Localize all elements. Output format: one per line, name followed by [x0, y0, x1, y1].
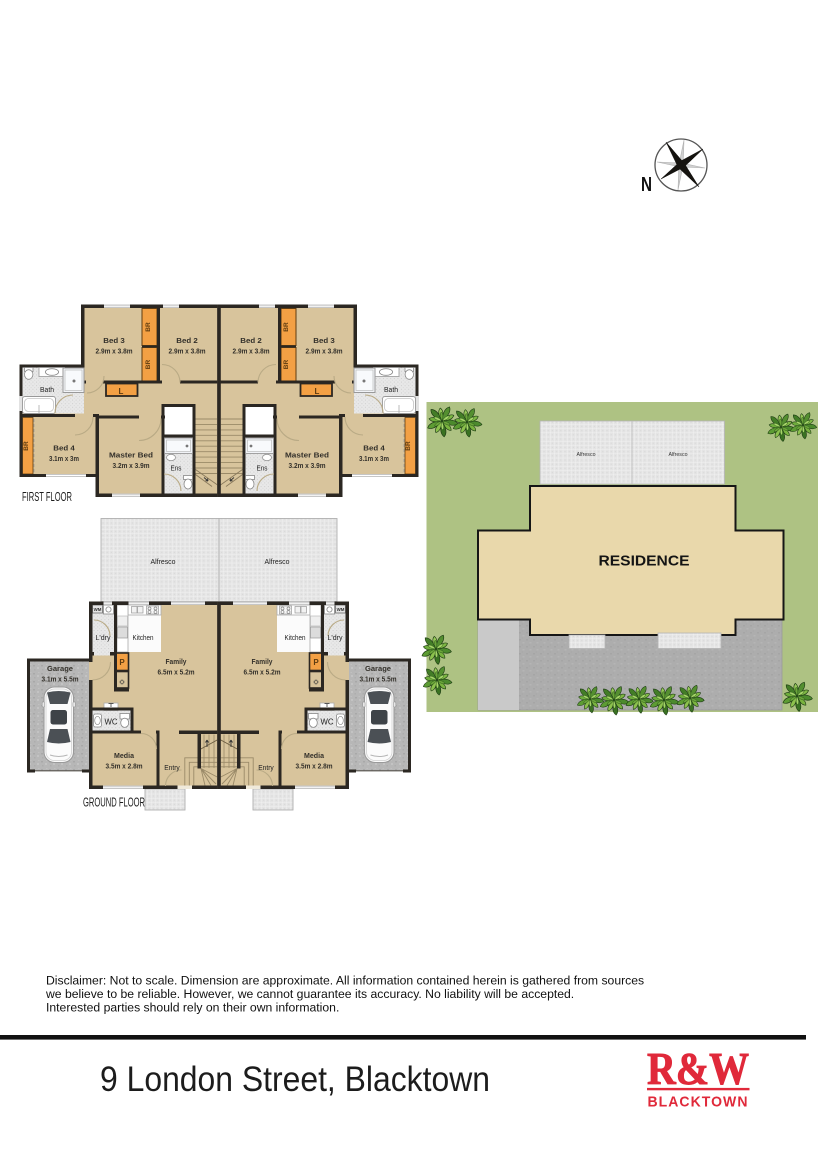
svg-text:Bath: Bath	[384, 387, 398, 394]
svg-text:RESIDENCE: RESIDENCE	[599, 553, 690, 570]
svg-text:3.2m x 3.9m: 3.2m x 3.9m	[289, 461, 326, 470]
svg-text:Alfresco: Alfresco	[669, 452, 688, 458]
svg-text:Entry: Entry	[164, 763, 180, 772]
svg-text:Media: Media	[304, 751, 325, 760]
svg-text:N: N	[641, 174, 652, 196]
svg-text:BR: BR	[283, 322, 290, 332]
svg-text:Master Bed: Master Bed	[285, 451, 329, 460]
svg-text:Kitchen: Kitchen	[285, 633, 306, 642]
svg-text:3.5m x 2.8m: 3.5m x 2.8m	[296, 762, 333, 771]
svg-text:Bed 4: Bed 4	[53, 444, 75, 453]
svg-text:2.9m x 3.8m: 2.9m x 3.8m	[169, 347, 206, 356]
svg-text:L: L	[119, 387, 124, 396]
svg-text:Alfresco: Alfresco	[265, 559, 290, 566]
svg-text:6.5m x 5.2m: 6.5m x 5.2m	[244, 668, 281, 677]
svg-text:3.1m x 5.5m: 3.1m x 5.5m	[42, 675, 79, 684]
svg-text:WM: WM	[94, 607, 102, 612]
svg-text:Bed 2: Bed 2	[240, 336, 262, 345]
svg-text:Interested parties should rely: Interested parties should rely on their …	[46, 1000, 339, 1014]
svg-text:FIRST FLOOR: FIRST FLOOR	[22, 489, 72, 504]
svg-text:Disclaimer: Not to scale. Dime: Disclaimer: Not to scale. Dimension are …	[46, 974, 644, 988]
svg-text:Alfresco: Alfresco	[577, 452, 596, 458]
svg-text:Family: Family	[252, 657, 274, 666]
svg-text:Master Bed: Master Bed	[109, 451, 153, 460]
svg-text:GROUND FLOOR: GROUND FLOOR	[83, 795, 145, 810]
svg-text:Ens: Ens	[171, 466, 182, 473]
svg-text:3.1m x 3m: 3.1m x 3m	[359, 454, 389, 463]
svg-text:3.1m x 5.5m: 3.1m x 5.5m	[360, 675, 397, 684]
svg-text:Kitchen: Kitchen	[133, 633, 154, 642]
svg-text:3.5m x 2.8m: 3.5m x 2.8m	[106, 762, 143, 771]
svg-text:Family: Family	[166, 657, 188, 666]
svg-text:Bed 3: Bed 3	[103, 336, 125, 345]
svg-text:Garage: Garage	[47, 664, 73, 673]
svg-text:Media: Media	[114, 751, 135, 760]
svg-text:WC: WC	[105, 718, 118, 727]
svg-text:we believe to be reliable. How: we believe to be reliable. However, we c…	[45, 987, 574, 1001]
svg-text:L'dry: L'dry	[96, 635, 111, 642]
svg-text:WC: WC	[321, 718, 334, 727]
svg-text:Ens: Ens	[257, 466, 268, 473]
svg-text:Bed 2: Bed 2	[176, 336, 198, 345]
svg-text:L: L	[315, 387, 320, 396]
svg-text:9 London Street, Blacktown: 9 London Street, Blacktown	[100, 1060, 490, 1099]
svg-text:Garage: Garage	[365, 664, 391, 673]
svg-text:BR: BR	[145, 360, 152, 370]
svg-text:2.9m x 3.8m: 2.9m x 3.8m	[96, 347, 133, 356]
svg-text:L'dry: L'dry	[328, 635, 343, 642]
svg-text:Bath: Bath	[40, 387, 54, 394]
svg-text:P: P	[119, 658, 125, 667]
svg-text:3.1m x 3m: 3.1m x 3m	[49, 454, 79, 463]
svg-text:Bed 3: Bed 3	[313, 336, 335, 345]
svg-text:2.9m x 3.8m: 2.9m x 3.8m	[233, 347, 270, 356]
svg-text:BR: BR	[145, 322, 152, 332]
svg-text:Entry: Entry	[258, 763, 274, 772]
svg-text:BR: BR	[283, 360, 290, 370]
svg-text:R&W: R&W	[647, 1043, 749, 1094]
svg-text:P: P	[313, 658, 319, 667]
svg-text:3.2m x 3.9m: 3.2m x 3.9m	[113, 461, 150, 470]
svg-text:Alfresco: Alfresco	[151, 559, 176, 566]
svg-text:BLACKTOWN: BLACKTOWN	[648, 1094, 749, 1111]
svg-text:Bed 4: Bed 4	[363, 444, 385, 453]
svg-text:6.5m x 5.2m: 6.5m x 5.2m	[158, 668, 195, 677]
svg-text:WM: WM	[337, 607, 345, 612]
svg-text:2.9m x 3.8m: 2.9m x 3.8m	[306, 347, 343, 356]
svg-text:BR: BR	[405, 441, 412, 451]
svg-text:BR: BR	[23, 441, 30, 451]
